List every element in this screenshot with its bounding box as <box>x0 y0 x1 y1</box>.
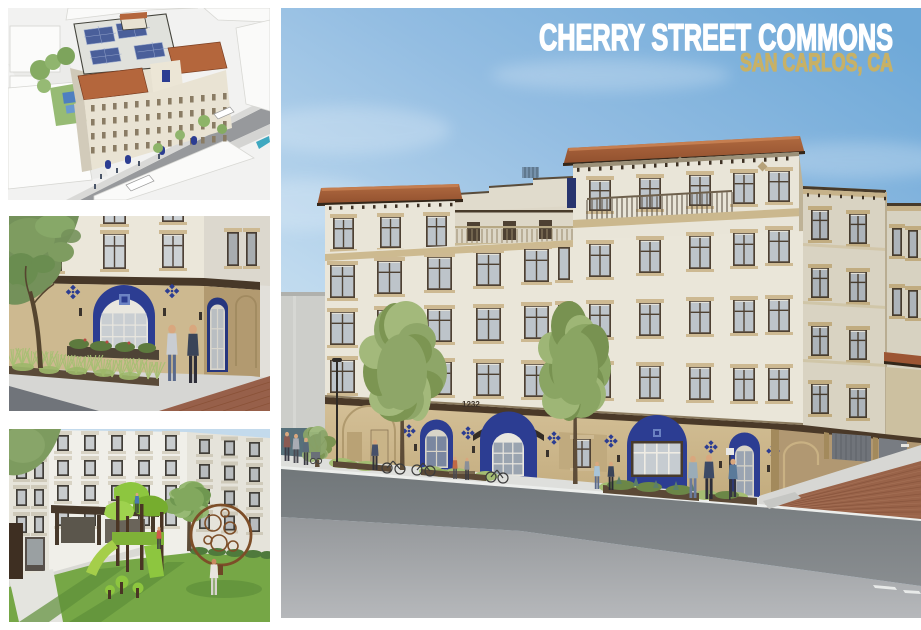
svg-text:SAN CARLOS, CA: SAN CARLOS, CA <box>740 49 893 77</box>
svg-text:1232: 1232 <box>462 400 480 409</box>
